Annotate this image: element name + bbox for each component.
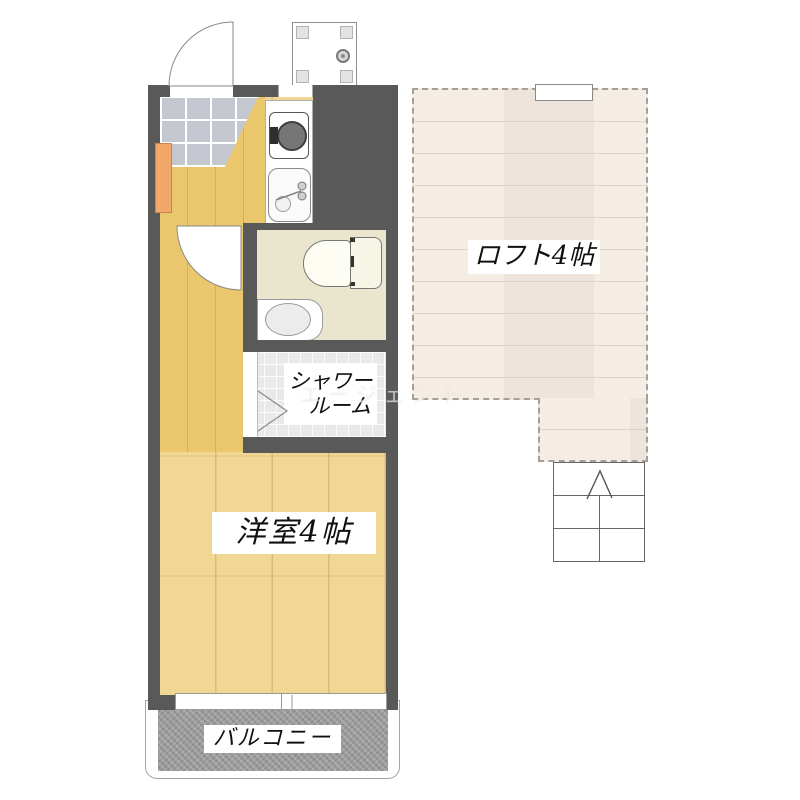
stairs-up-arrow-icon [554, 463, 646, 563]
stove-grill [270, 127, 278, 144]
window-mullion [281, 694, 282, 709]
toilet-bowl [303, 240, 351, 287]
basin-bowl-icon [265, 303, 311, 336]
loft-label-text: ロフト4帖 [474, 242, 595, 272]
washing-machine-pan [292, 22, 357, 87]
floor-plan: ロフト4帖 シャワー ルーム [0, 0, 800, 800]
pan-foot [296, 26, 309, 39]
loft-stairs [553, 462, 645, 562]
entrance-door-arc [169, 22, 233, 86]
shower-wall-bottom [243, 437, 386, 453]
loft-area-extension [538, 398, 648, 462]
toilet-wall-top [243, 223, 386, 230]
balcony-label: バルコニー [204, 725, 341, 753]
stove-burner-icon [277, 121, 307, 151]
kitchen-window [278, 85, 313, 97]
main-room-label-text: 洋室4帖 [235, 516, 352, 551]
shower-folding-door [243, 352, 258, 437]
loft-window [535, 84, 593, 101]
pan-foot [340, 70, 353, 83]
main-room-label: 洋室4帖 [212, 512, 376, 554]
sink-drain-icon [275, 196, 291, 212]
pan-foot [340, 26, 353, 39]
pipe-space [313, 85, 398, 230]
toilet-tank-detail [350, 238, 355, 242]
watermark: エージェント [300, 379, 468, 409]
balcony-label-text: バルコニー [213, 726, 333, 751]
balcony-window [175, 693, 387, 710]
shoe-cabinet [155, 143, 172, 213]
pan-drain-icon [336, 49, 350, 63]
hall-floor-left [160, 223, 243, 452]
toilet-wall-left [243, 223, 257, 352]
loft-label: ロフト4帖 [468, 240, 600, 274]
entrance-opening [170, 85, 233, 97]
kitchen-sink [268, 168, 311, 222]
pan-foot [296, 70, 309, 83]
shower-wall-top [243, 340, 386, 352]
